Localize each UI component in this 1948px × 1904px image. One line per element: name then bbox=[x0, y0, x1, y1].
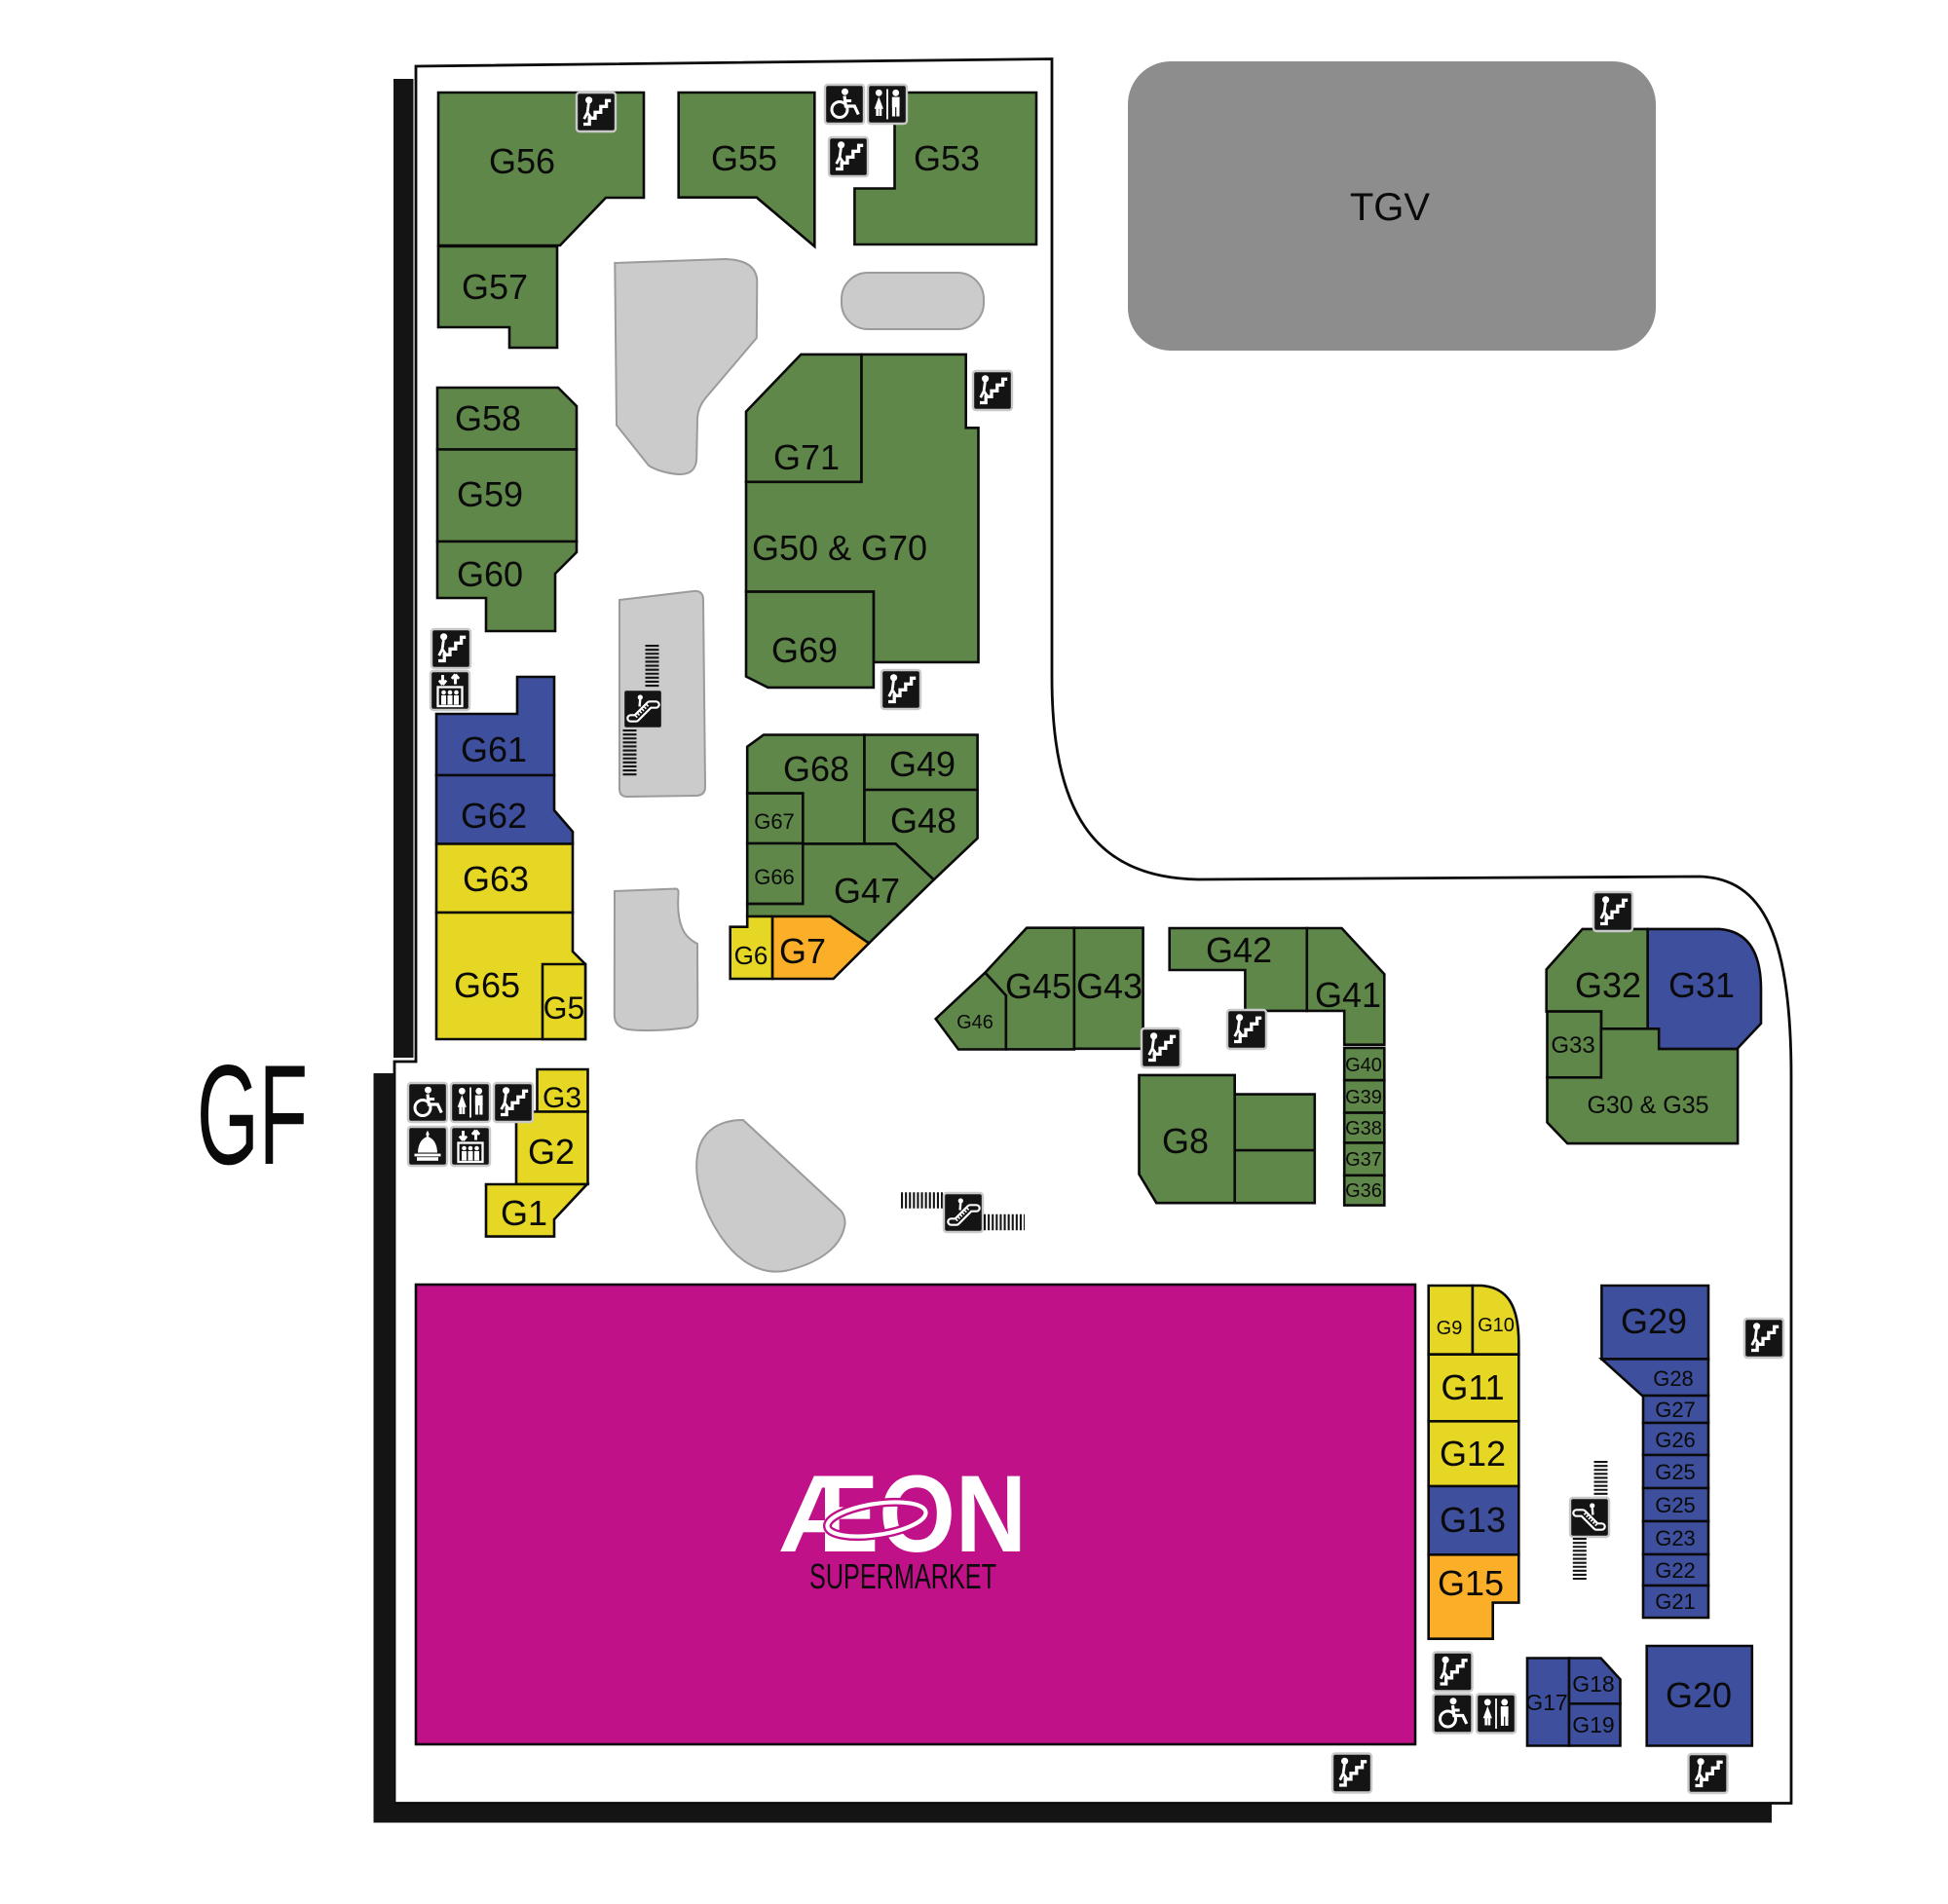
svg-text:G55: G55 bbox=[711, 138, 777, 178]
svg-text:G56: G56 bbox=[489, 141, 555, 181]
svg-text:G10: G10 bbox=[1478, 1315, 1515, 1336]
svg-text:G38: G38 bbox=[1345, 1118, 1382, 1139]
svg-text:G42: G42 bbox=[1206, 930, 1272, 970]
svg-text:G60: G60 bbox=[457, 554, 523, 594]
svg-text:G37: G37 bbox=[1345, 1149, 1382, 1171]
svg-text:G33: G33 bbox=[1551, 1032, 1594, 1059]
svg-text:G26: G26 bbox=[1655, 1428, 1696, 1452]
svg-text:G6: G6 bbox=[734, 941, 768, 970]
svg-text:G29: G29 bbox=[1621, 1301, 1687, 1341]
svg-text:G9: G9 bbox=[1437, 1318, 1463, 1339]
svg-text:G71: G71 bbox=[773, 437, 840, 477]
svg-text:G13: G13 bbox=[1440, 1500, 1506, 1540]
svg-text:G19: G19 bbox=[1572, 1712, 1614, 1737]
svg-text:G39: G39 bbox=[1345, 1087, 1382, 1108]
svg-text:G48: G48 bbox=[890, 801, 956, 840]
svg-text:G25: G25 bbox=[1655, 1460, 1696, 1484]
svg-text:G69: G69 bbox=[771, 630, 838, 670]
svg-text:G59: G59 bbox=[457, 474, 523, 514]
svg-text:G7: G7 bbox=[779, 931, 826, 971]
svg-text:G15: G15 bbox=[1438, 1563, 1504, 1603]
svg-text:G61: G61 bbox=[461, 729, 527, 769]
svg-text:G67: G67 bbox=[754, 809, 795, 834]
svg-text:G12: G12 bbox=[1440, 1434, 1506, 1474]
svg-text:G31: G31 bbox=[1668, 965, 1735, 1005]
svg-text:G20: G20 bbox=[1666, 1675, 1732, 1715]
svg-text:G8: G8 bbox=[1162, 1121, 1209, 1161]
svg-text:G1: G1 bbox=[501, 1193, 547, 1233]
svg-text:G62: G62 bbox=[461, 796, 527, 836]
svg-text:G41: G41 bbox=[1315, 975, 1381, 1015]
svg-text:G30 & G35: G30 & G35 bbox=[1587, 1092, 1708, 1119]
svg-text:G53: G53 bbox=[914, 138, 980, 178]
svg-text:G32: G32 bbox=[1575, 965, 1641, 1005]
svg-text:G22: G22 bbox=[1655, 1558, 1696, 1583]
svg-text:G47: G47 bbox=[834, 871, 900, 911]
svg-text:G66: G66 bbox=[754, 865, 795, 889]
svg-text:G40: G40 bbox=[1345, 1055, 1382, 1076]
svg-text:G49: G49 bbox=[889, 744, 955, 784]
svg-text:G45: G45 bbox=[1005, 966, 1071, 1006]
svg-text:G58: G58 bbox=[455, 398, 521, 438]
svg-text:TGV: TGV bbox=[1350, 186, 1431, 229]
svg-text:G23: G23 bbox=[1655, 1526, 1696, 1550]
svg-text:G50 & G70: G50 & G70 bbox=[752, 528, 927, 568]
svg-text:G11: G11 bbox=[1441, 1367, 1504, 1407]
svg-text:G63: G63 bbox=[463, 859, 529, 899]
svg-text:G28: G28 bbox=[1653, 1366, 1694, 1391]
svg-text:G46: G46 bbox=[956, 1012, 993, 1033]
svg-text:G2: G2 bbox=[528, 1132, 575, 1172]
svg-text:G57: G57 bbox=[462, 267, 528, 307]
svg-text:G3: G3 bbox=[543, 1082, 581, 1114]
svg-text:GF: GF bbox=[197, 1035, 308, 1194]
svg-text:G43: G43 bbox=[1076, 966, 1143, 1006]
svg-text:G21: G21 bbox=[1655, 1589, 1696, 1614]
svg-text:G17: G17 bbox=[1525, 1690, 1567, 1715]
svg-text:G65: G65 bbox=[454, 965, 520, 1005]
svg-text:SUPERMARKET: SUPERMARKET bbox=[809, 1556, 996, 1596]
svg-text:G5: G5 bbox=[543, 990, 585, 1026]
svg-text:G27: G27 bbox=[1655, 1398, 1696, 1422]
svg-text:G25: G25 bbox=[1655, 1493, 1696, 1517]
svg-text:G18: G18 bbox=[1572, 1671, 1614, 1697]
svg-text:G68: G68 bbox=[783, 749, 849, 789]
svg-text:G36: G36 bbox=[1345, 1180, 1382, 1202]
